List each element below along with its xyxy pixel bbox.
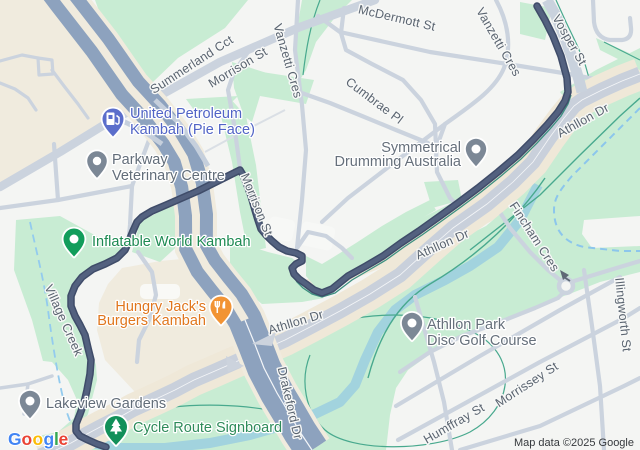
svg-text:Athllon Park: Athllon Park — [427, 317, 506, 333]
svg-text:G: G — [8, 429, 22, 449]
svg-text:Map data ©2025 Google: Map data ©2025 Google — [514, 437, 634, 449]
svg-text:Parkway: Parkway — [112, 152, 168, 168]
svg-text:e: e — [59, 429, 69, 449]
svg-text:Kambah (Pie Face): Kambah (Pie Face) — [130, 122, 255, 138]
svg-text:Lakeview Gardens: Lakeview Gardens — [46, 396, 166, 412]
svg-text:o: o — [33, 429, 44, 449]
svg-text:Cycle Route Signboard: Cycle Route Signboard — [133, 420, 282, 436]
svg-text:g: g — [44, 429, 55, 449]
svg-text:Inflatable World Kambah: Inflatable World Kambah — [92, 234, 251, 250]
svg-text:Disc Golf Course: Disc Golf Course — [427, 333, 537, 349]
svg-text:Veterinary Centre: Veterinary Centre — [112, 168, 225, 184]
svg-text:United Petroleum: United Petroleum — [130, 106, 242, 122]
svg-text:Burgers Kambah: Burgers Kambah — [97, 313, 206, 329]
svg-text:o: o — [22, 429, 33, 449]
svg-text:Drumming Australia: Drumming Australia — [334, 154, 461, 170]
